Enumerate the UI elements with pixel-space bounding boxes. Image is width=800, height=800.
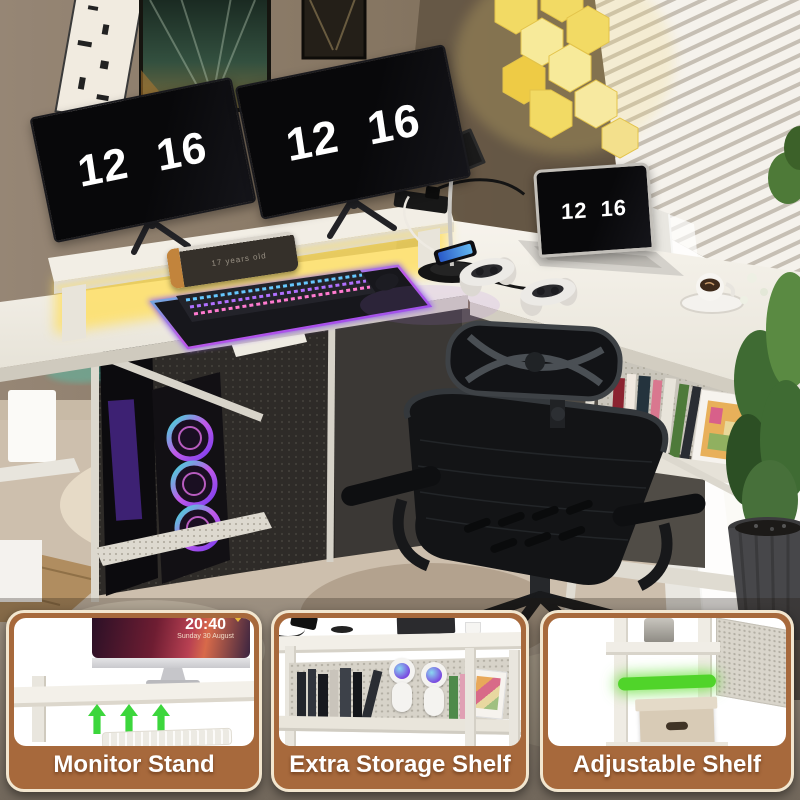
panel1-image: 20:40 Sunday 30 August	[14, 618, 254, 746]
white-keyboard	[102, 728, 233, 747]
feature-panel-extra-storage: Extra Storage Shelf	[271, 610, 529, 792]
feature-panel-adjustable-shelf: Adjustable Shelf	[540, 610, 794, 792]
storage-box	[639, 703, 714, 747]
speaker-label: 17 years old	[211, 250, 267, 267]
storage-shelf-board	[279, 716, 521, 736]
panel2-image	[279, 618, 521, 746]
panel3-label: Adjustable Shelf	[548, 746, 786, 784]
laptop-screen: 12 16	[533, 162, 655, 258]
upper-shelf-board	[606, 642, 720, 655]
monitor-stand-shelf	[14, 681, 254, 708]
panel1-label: Monitor Stand	[14, 746, 254, 784]
imac-clock: 20:40 Sunday 30 August	[177, 618, 234, 640]
books-group-left	[297, 666, 391, 724]
wall-art-small	[303, 0, 365, 58]
pen-holder	[644, 618, 674, 642]
imac-screen: 20:40 Sunday 30 August	[92, 618, 250, 658]
panel3-image	[548, 618, 786, 746]
laptop-clock: 12 16	[561, 195, 627, 226]
imac-chin	[92, 658, 250, 668]
product-photo-gaming-desk: 12 16 12 16 12 16 17 years old 20:40 Sun…	[0, 0, 800, 800]
panel2-label: Extra Storage Shelf	[279, 746, 521, 784]
frame-post	[465, 648, 476, 746]
up-arrow-icon	[88, 704, 106, 734]
frame-post	[509, 650, 520, 746]
left-monitor-clock: 12 16	[75, 122, 211, 198]
feature-panel-monitor-stand: 20:40 Sunday 30 August Monitor Stand	[6, 610, 262, 792]
desk-disc	[331, 626, 353, 633]
lower-shelf-board	[606, 742, 728, 746]
desk-top-board	[279, 632, 521, 654]
up-arrow-icon	[120, 704, 138, 734]
imac-time: 20:40	[177, 618, 234, 633]
mesh-side-panel	[716, 618, 786, 709]
box-handle-slot	[666, 722, 688, 731]
box-lid	[635, 697, 717, 712]
right-monitor-clock: 12 16	[282, 92, 423, 173]
imac-date: Sunday 30 August	[177, 633, 234, 640]
